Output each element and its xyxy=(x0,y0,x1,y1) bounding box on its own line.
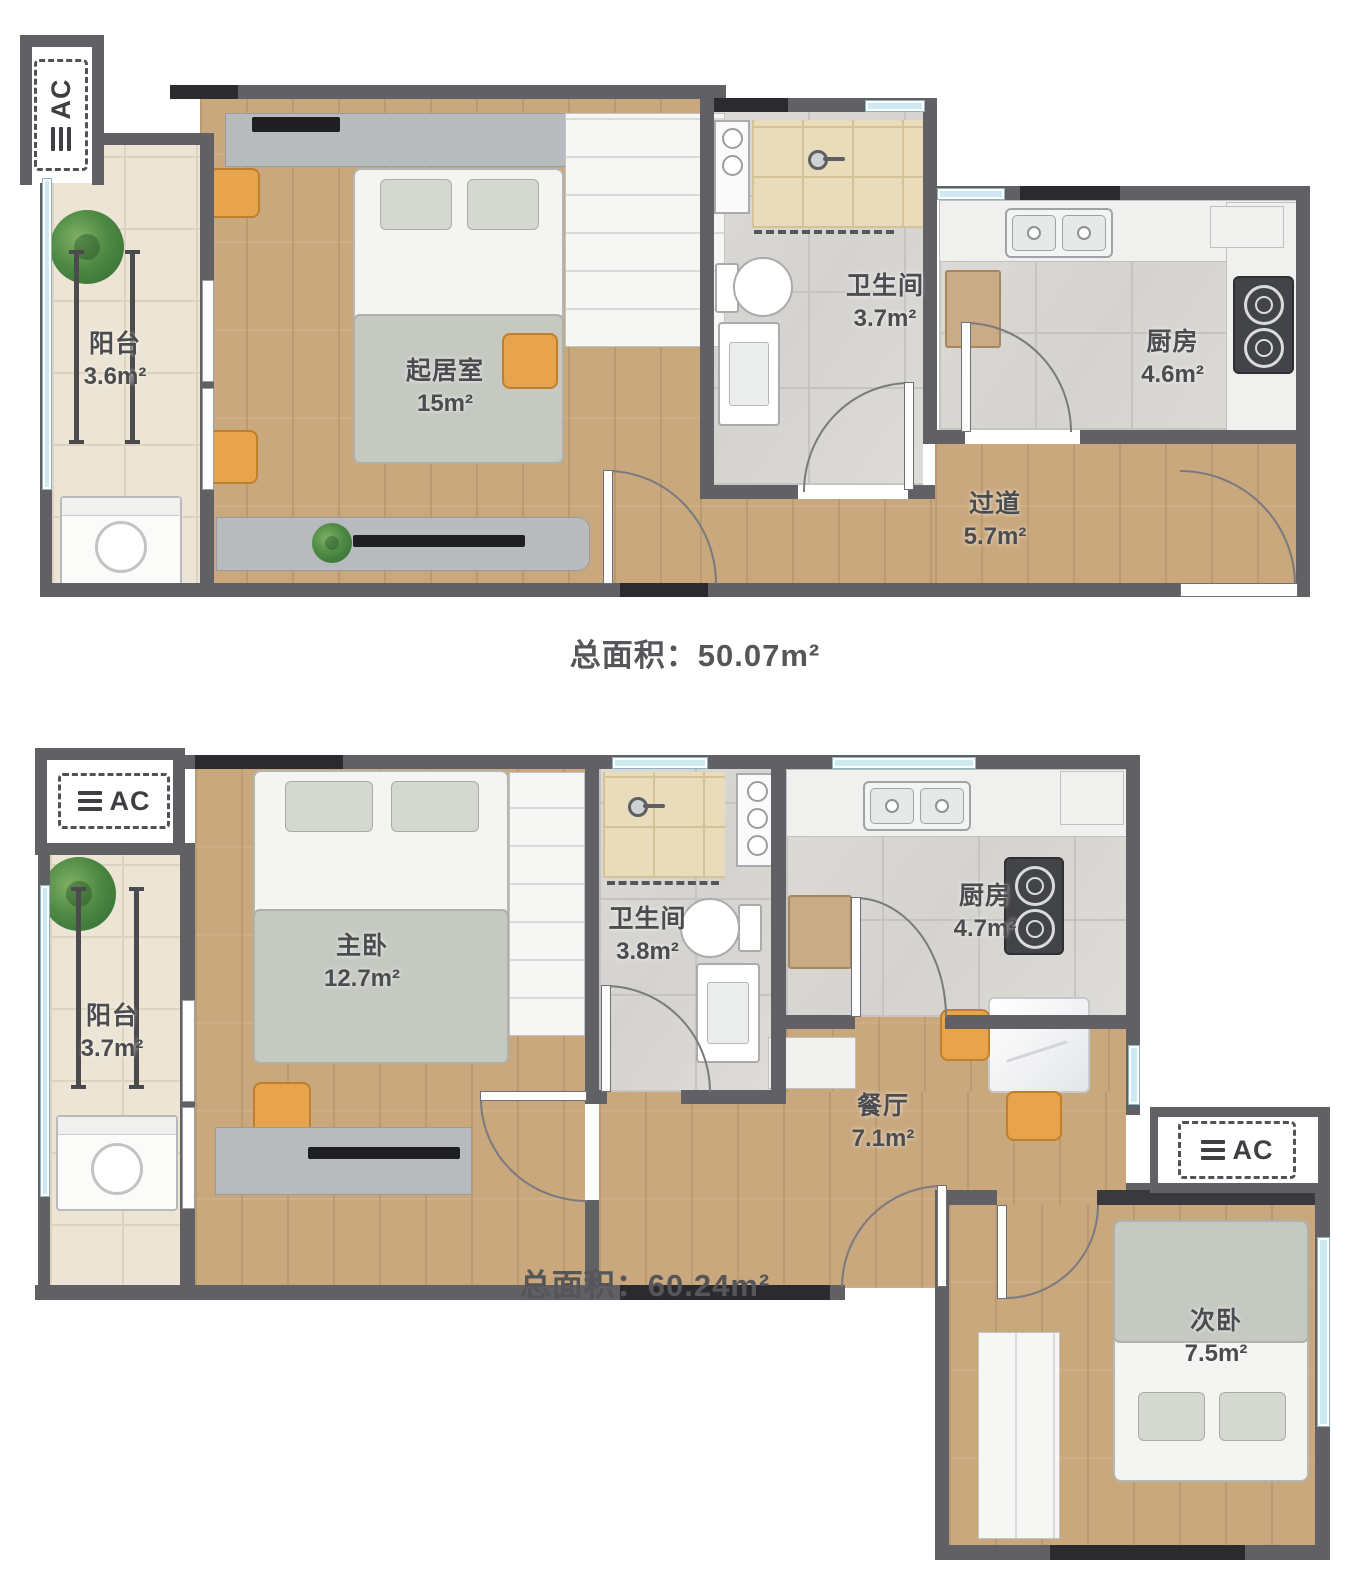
room-area: 7.5m² xyxy=(1185,1338,1248,1369)
room-label: 起居室 15m² xyxy=(365,355,525,419)
washer-control-panel xyxy=(62,498,180,516)
balcony-sliding-door xyxy=(182,1107,195,1209)
floor-shower-area xyxy=(752,120,923,228)
wall xyxy=(35,843,185,855)
washer-control-panel xyxy=(58,1117,176,1135)
vanity-sink xyxy=(718,322,780,426)
balcony-sliding-door xyxy=(202,280,214,382)
door-leaf xyxy=(904,382,914,490)
plan-a: AC 阳台 3.6m² 起居室 15m² 卫生间 3.7m² 厨房 xyxy=(20,30,1330,615)
wall xyxy=(700,98,714,499)
ac-unit: AC xyxy=(34,59,88,171)
room-name: 卫生间 xyxy=(608,903,686,936)
vanity-basin xyxy=(707,982,749,1043)
room-area: 7.1m² xyxy=(852,1123,915,1154)
wall xyxy=(681,1090,786,1104)
entrance-door-leaf xyxy=(1180,583,1298,597)
window xyxy=(42,178,52,490)
sink-basin xyxy=(747,808,768,829)
floorplan-page: AC 阳台 3.6m² 起居室 15m² 卫生间 3.7m² 厨房 xyxy=(0,0,1350,1570)
double-sink xyxy=(863,781,971,831)
sink-basin xyxy=(747,781,768,802)
room-name: 阳台 xyxy=(89,328,141,361)
wall xyxy=(786,1015,855,1029)
plan-b: AC AC 阳台 3.7m² xyxy=(20,745,1330,1570)
pillow xyxy=(1219,1392,1286,1440)
room-name: 阳台 xyxy=(86,1000,138,1033)
ac-label: AC xyxy=(110,786,151,817)
pillow xyxy=(285,781,373,832)
ac-unit: AC xyxy=(1178,1121,1296,1179)
toilet-bowl xyxy=(733,257,793,317)
ac-unit: AC xyxy=(58,773,170,829)
room-label: 餐厅 7.1m² xyxy=(813,1090,953,1154)
wall xyxy=(35,748,47,855)
window xyxy=(40,885,50,1197)
room-area: 12.7m² xyxy=(324,963,400,994)
balcony-sliding-door xyxy=(202,388,214,490)
wall xyxy=(195,755,343,769)
room-area: 3.7m² xyxy=(81,1033,144,1064)
desk xyxy=(215,1127,472,1195)
room-label: 阳台 3.6m² xyxy=(55,328,175,392)
bathroom-cabinet xyxy=(714,120,750,214)
sink-basin xyxy=(722,155,743,176)
room-area: 5.7m² xyxy=(964,521,1027,552)
room-area: 4.7m² xyxy=(954,913,1017,944)
wall xyxy=(1150,1107,1330,1117)
sink-basin xyxy=(1012,215,1056,251)
burner xyxy=(1244,328,1284,368)
sink-basin xyxy=(722,128,743,149)
sink-basin xyxy=(870,788,914,824)
room-label: 厨房 4.6m² xyxy=(1100,326,1245,390)
toilet xyxy=(715,256,791,316)
floor-shower-area xyxy=(603,772,725,878)
room-label: 过道 5.7m² xyxy=(925,488,1065,552)
vanity-sink xyxy=(696,963,760,1063)
ac-vents xyxy=(51,128,71,152)
tv-flatscreen xyxy=(308,1147,460,1159)
wall xyxy=(1050,1545,1245,1560)
pillow xyxy=(380,179,452,231)
pillow xyxy=(1138,1392,1205,1440)
kitchen-appliance xyxy=(1060,771,1124,825)
wall xyxy=(170,85,238,99)
wall xyxy=(35,748,185,760)
room-label: 次卧 7.5m² xyxy=(1146,1305,1286,1369)
chair xyxy=(208,168,260,218)
window xyxy=(1128,1045,1140,1105)
wall xyxy=(1020,186,1120,200)
wall xyxy=(170,85,726,99)
room-area: 4.6m² xyxy=(1141,359,1204,390)
room-label: 卫生间 3.8m² xyxy=(580,903,715,967)
wardrobe xyxy=(978,1332,1060,1539)
door-leaf xyxy=(603,470,613,584)
total-area-caption: 总面积：60.24m² xyxy=(0,1260,1350,1305)
room-area: 15m² xyxy=(417,388,473,419)
double-bed xyxy=(353,168,564,464)
dining-table xyxy=(988,997,1090,1093)
room-label: 卫生间 3.7m² xyxy=(820,270,950,334)
room-name: 厨房 xyxy=(1146,326,1198,359)
kitchen-appliance xyxy=(1210,206,1284,248)
door-leaf xyxy=(601,985,611,1092)
shower-threshold xyxy=(754,230,894,234)
chair xyxy=(1006,1091,1062,1141)
room-name: 主卧 xyxy=(336,930,388,963)
room-name: 次卧 xyxy=(1190,1305,1242,1338)
door-leaf xyxy=(851,897,861,1017)
room-name: 起居室 xyxy=(406,355,484,388)
room-name: 厨房 xyxy=(959,880,1011,913)
ac-vents xyxy=(78,791,102,811)
pillow xyxy=(391,781,479,832)
room-name: 过道 xyxy=(969,488,1021,521)
wall xyxy=(1296,186,1310,597)
wall xyxy=(923,430,965,444)
washer-drum xyxy=(95,521,147,573)
room-label: 厨房 4.7m² xyxy=(915,880,1055,944)
shower-icon xyxy=(628,797,648,817)
room-area: 3.7m² xyxy=(854,303,917,334)
wall xyxy=(40,583,1180,597)
washing-machine xyxy=(60,496,182,588)
ac-label: AC xyxy=(1233,1135,1274,1166)
wall xyxy=(92,35,104,185)
wall xyxy=(771,755,786,1104)
floor-hallway xyxy=(700,499,935,595)
wall xyxy=(1080,430,1296,444)
door-leaf xyxy=(480,1091,587,1101)
fridge xyxy=(788,895,852,969)
vanity-basin xyxy=(729,342,770,406)
window xyxy=(865,100,925,112)
tv-flatscreen xyxy=(353,535,525,547)
double-sink xyxy=(1005,208,1113,258)
caption-label: 总面积： xyxy=(570,638,698,673)
wall xyxy=(20,35,32,185)
window xyxy=(832,757,976,769)
sink-basin xyxy=(747,835,768,856)
wall xyxy=(585,1090,607,1104)
wall xyxy=(173,748,185,855)
total-area-caption: 总面积：50.07m² xyxy=(0,630,1350,675)
room-label: 主卧 12.7m² xyxy=(282,930,442,994)
washer-drum xyxy=(91,1143,143,1195)
room-area: 3.8m² xyxy=(616,936,679,967)
shower-threshold xyxy=(607,881,719,885)
wardrobe xyxy=(509,772,585,1036)
double-bed xyxy=(253,770,509,1064)
ac-vents xyxy=(1201,1140,1225,1160)
room-area: 3.6m² xyxy=(84,361,147,392)
balcony-sliding-door xyxy=(182,1000,195,1102)
sink-basin xyxy=(1062,215,1106,251)
window xyxy=(612,757,708,769)
caption-value: 50.07m² xyxy=(698,638,820,673)
room-label: 阳台 3.7m² xyxy=(52,1000,172,1064)
caption-value: 60.24m² xyxy=(648,1268,770,1303)
wall xyxy=(1150,1183,1330,1193)
shower-icon xyxy=(808,150,828,170)
washing-machine xyxy=(56,1115,178,1211)
window xyxy=(937,188,1005,200)
tv-flatscreen xyxy=(252,117,340,132)
sink-basin xyxy=(920,788,964,824)
ac-label: AC xyxy=(46,79,77,120)
toilet-tank xyxy=(738,904,762,952)
caption-label: 总面积： xyxy=(520,1268,648,1303)
plant-icon xyxy=(50,210,124,284)
room-name: 卫生间 xyxy=(846,270,924,303)
wall xyxy=(945,1015,1126,1029)
wall xyxy=(1318,1107,1330,1193)
wall xyxy=(1150,1107,1158,1193)
wall xyxy=(700,485,798,499)
room-name: 餐厅 xyxy=(857,1090,909,1123)
burner xyxy=(1244,285,1284,325)
wall xyxy=(620,583,708,597)
pillow xyxy=(467,179,539,231)
door-leaf xyxy=(961,322,971,432)
plant-icon xyxy=(312,523,352,563)
